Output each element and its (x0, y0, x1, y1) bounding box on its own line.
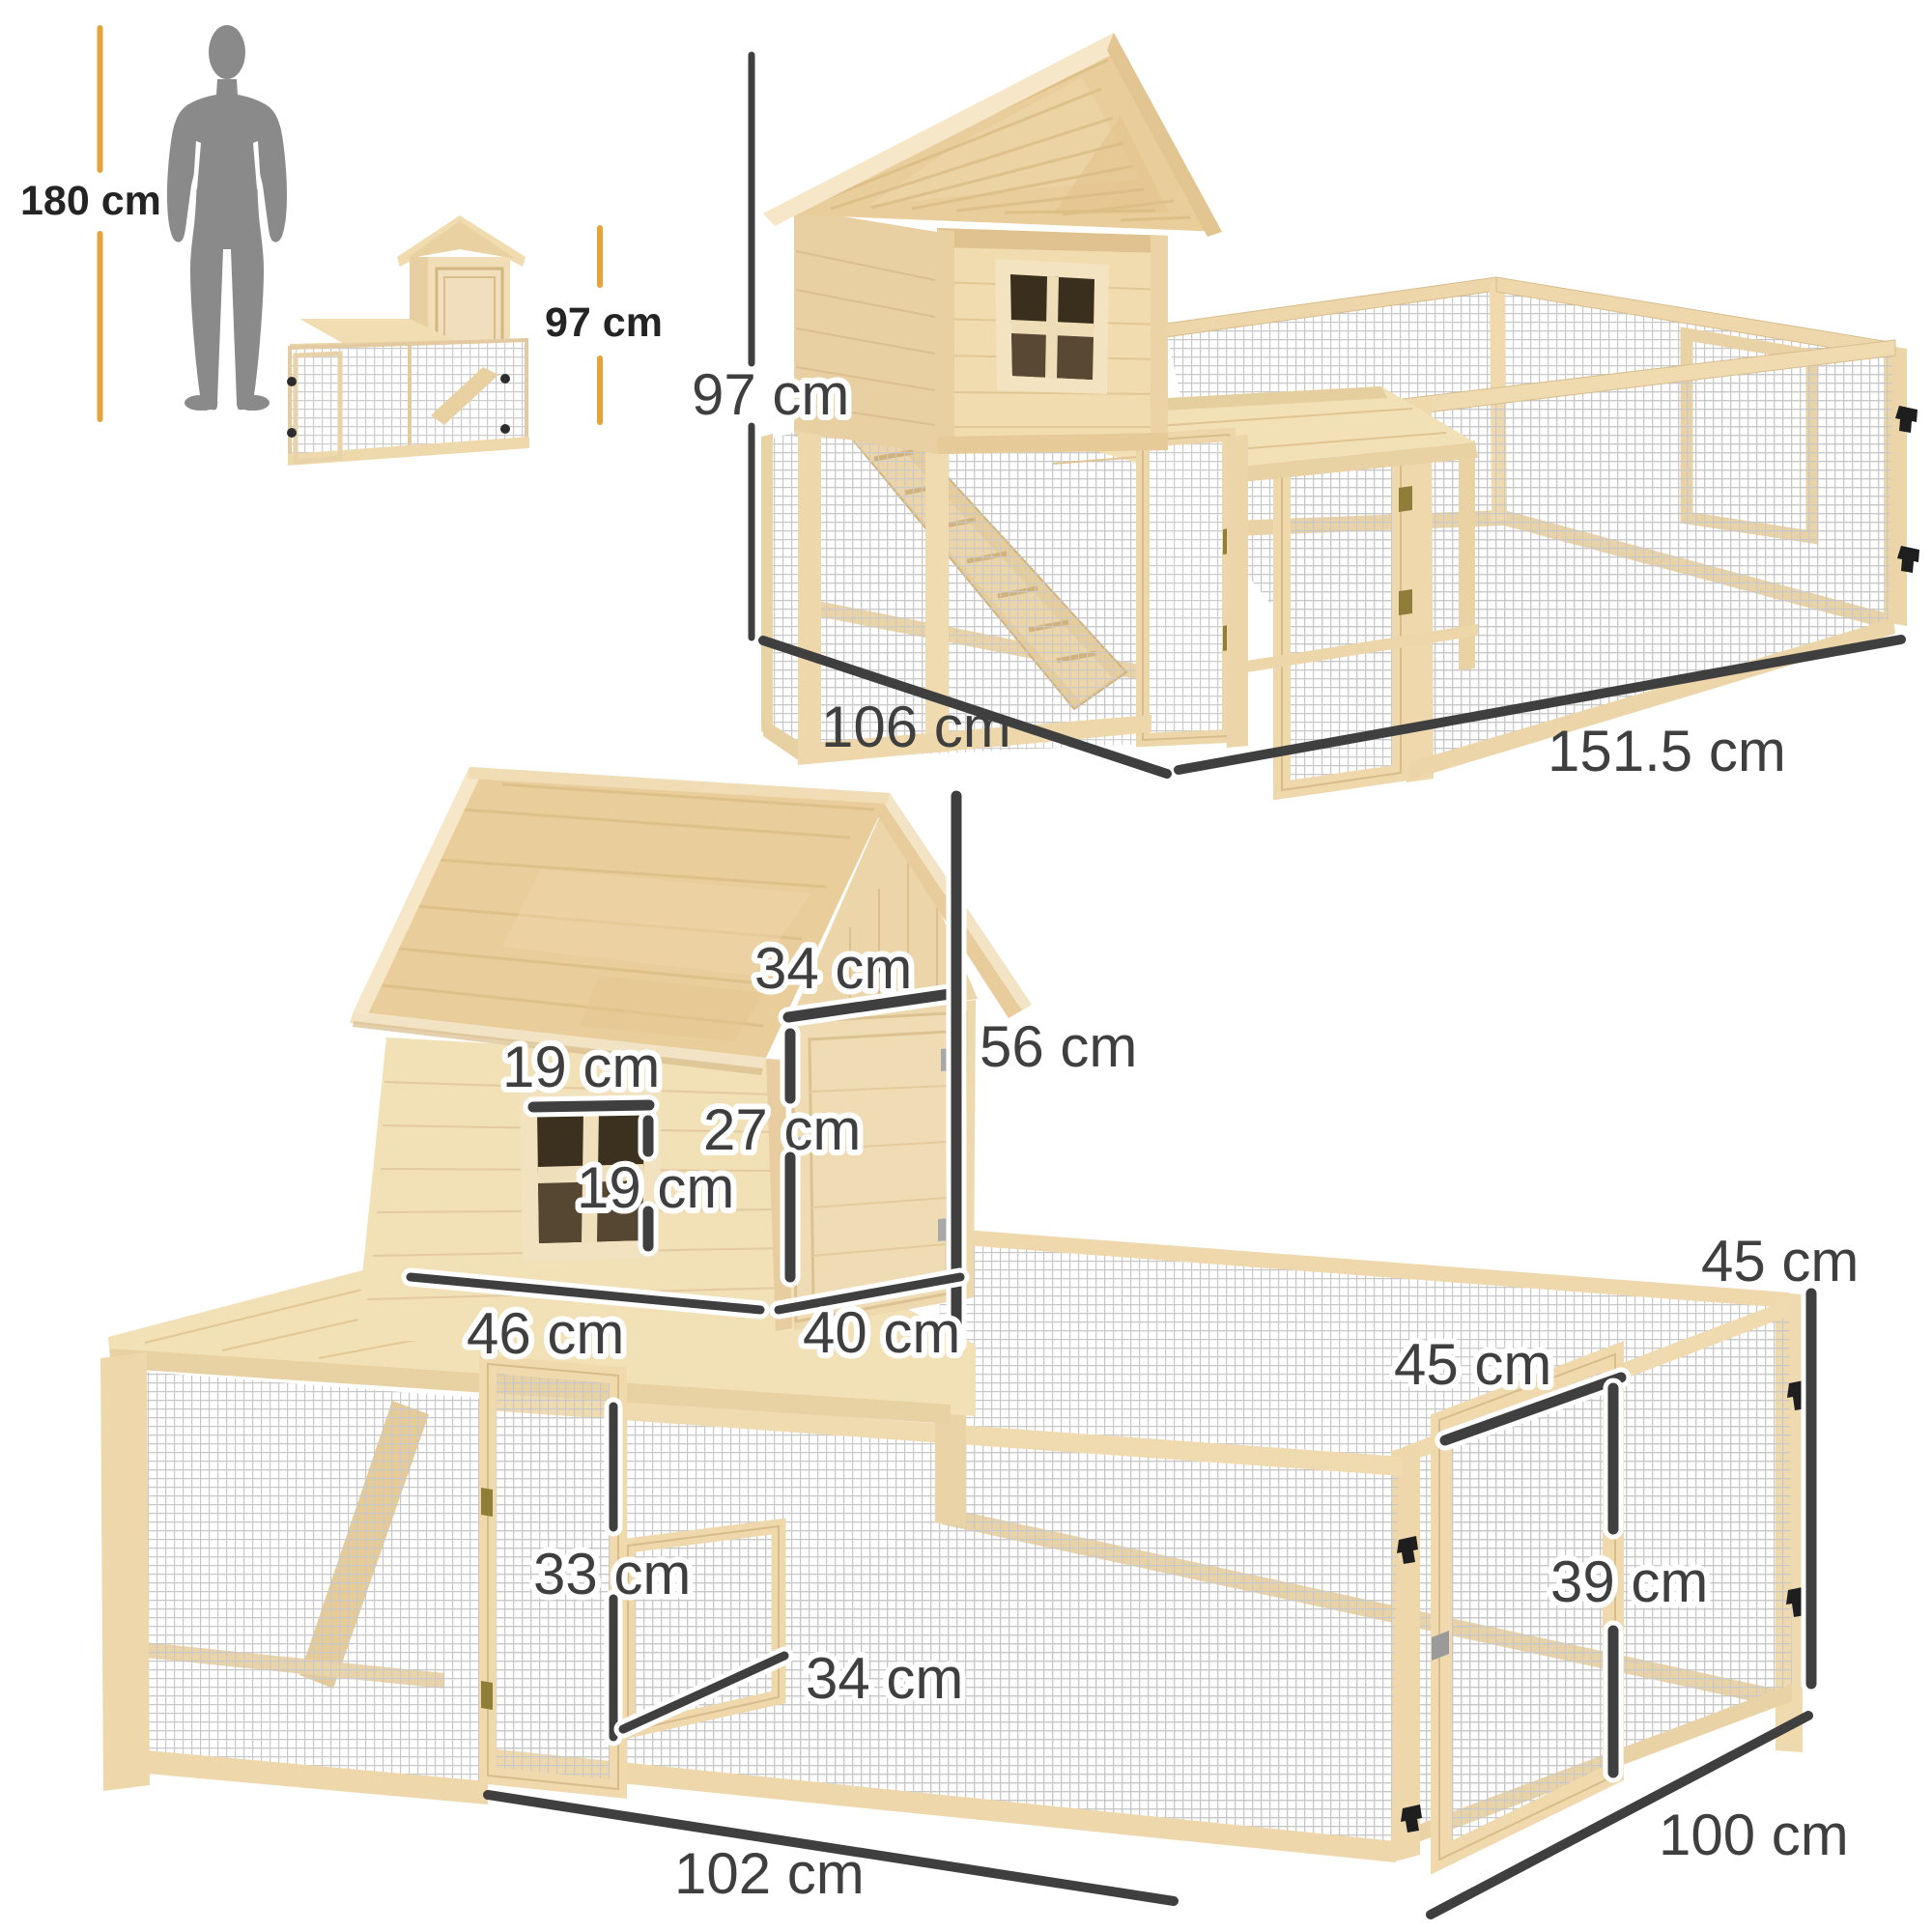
svg-text:45 cm: 45 cm (1394, 1332, 1551, 1397)
svg-text:180 cm: 180 cm (20, 178, 161, 224)
svg-text:97 cm: 97 cm (545, 299, 663, 346)
svg-text:46 cm: 46 cm (467, 1301, 624, 1366)
svg-text:97 cm: 97 cm (692, 362, 849, 427)
svg-text:45 cm: 45 cm (1701, 1229, 1859, 1293)
svg-text:34 cm: 34 cm (806, 1646, 963, 1711)
svg-text:106 cm: 106 cm (821, 695, 1011, 759)
svg-text:34 cm: 34 cm (754, 936, 912, 1001)
svg-text:39 cm: 39 cm (1550, 1549, 1708, 1614)
svg-text:56 cm: 56 cm (980, 1014, 1137, 1079)
svg-text:151.5 cm: 151.5 cm (1548, 719, 1786, 783)
svg-text:100 cm: 100 cm (1659, 1803, 1849, 1867)
svg-text:19 cm: 19 cm (502, 1035, 660, 1099)
svg-text:40 cm: 40 cm (803, 1300, 960, 1365)
svg-text:102 cm: 102 cm (674, 1841, 865, 1906)
